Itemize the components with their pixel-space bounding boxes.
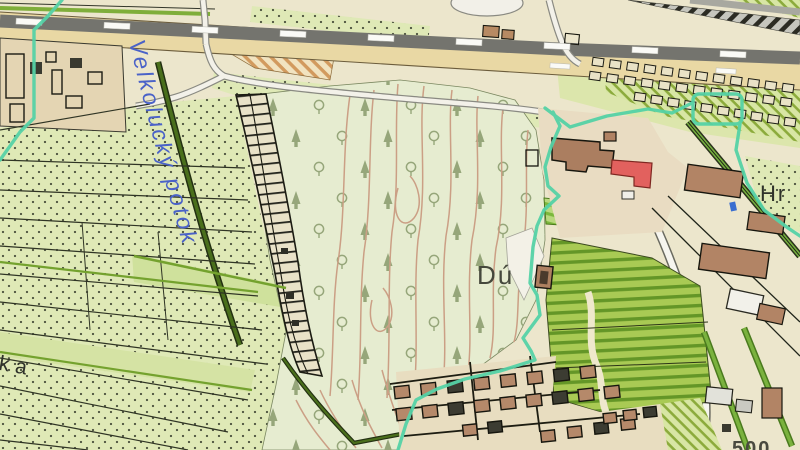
garden-plot	[651, 95, 663, 104]
garden-plot	[780, 97, 792, 106]
garden-plot	[609, 60, 621, 69]
garden-plot	[606, 74, 618, 83]
house	[487, 421, 502, 433]
house	[603, 412, 617, 423]
house	[540, 430, 555, 442]
road-dash-icon	[192, 26, 218, 33]
house	[394, 385, 410, 399]
garden-plot	[678, 69, 690, 78]
garden-plot	[734, 109, 746, 118]
garden-plot	[763, 95, 775, 104]
road-dash-icon	[720, 51, 746, 58]
garden-plot	[713, 74, 725, 83]
garden-plot	[624, 76, 636, 85]
house	[567, 426, 582, 438]
garden-plot	[658, 81, 670, 90]
house	[448, 402, 464, 416]
left-urban-block	[0, 38, 126, 132]
road-dash-icon	[456, 38, 482, 45]
road-dash-icon	[550, 63, 570, 69]
garden-plot	[641, 78, 653, 87]
road-dash-icon	[104, 22, 130, 29]
house	[553, 368, 569, 382]
garden-plot	[634, 92, 646, 101]
garden-plot	[717, 106, 729, 115]
house	[462, 424, 477, 436]
garden-plot	[782, 83, 794, 92]
garden-plot	[784, 117, 796, 126]
house	[500, 396, 516, 410]
house	[623, 409, 637, 420]
hill-label: Dú	[477, 260, 514, 290]
road-dash-icon	[716, 68, 736, 74]
road-dash-icon	[544, 43, 570, 50]
garden-plot	[730, 76, 742, 85]
garden-plot	[589, 71, 601, 80]
garden-plot	[661, 67, 673, 76]
house	[527, 371, 543, 385]
map-canvas[interactable]: Velkolucký potok Dú Hr ka 500	[0, 0, 800, 450]
house	[578, 388, 594, 402]
house	[526, 393, 542, 407]
garden-plot	[767, 114, 779, 123]
garden-plot	[627, 62, 639, 71]
house	[474, 377, 490, 391]
house	[643, 406, 657, 417]
garden-plot	[701, 103, 713, 112]
house	[604, 385, 620, 399]
garden-plot	[751, 112, 763, 121]
place-label-right: Hr	[760, 181, 787, 206]
garden-plot	[667, 98, 679, 107]
garden-plot	[745, 93, 757, 102]
garden-plot	[696, 71, 708, 80]
house	[552, 391, 568, 405]
road-dash-icon	[280, 30, 306, 37]
house	[422, 404, 438, 418]
house	[474, 399, 490, 413]
house	[500, 374, 516, 388]
garden-plot	[592, 57, 604, 66]
topographic-map: Velkolucký potok Dú Hr ka 500	[0, 0, 800, 450]
road-dash-icon	[368, 34, 394, 41]
house	[580, 365, 596, 379]
road-dash-icon	[632, 47, 658, 54]
scale-number-label: 500	[732, 438, 771, 450]
garden-plot	[676, 83, 688, 92]
garden-plot	[747, 79, 759, 88]
garden-plot	[765, 81, 777, 90]
garden-plot	[644, 64, 656, 73]
